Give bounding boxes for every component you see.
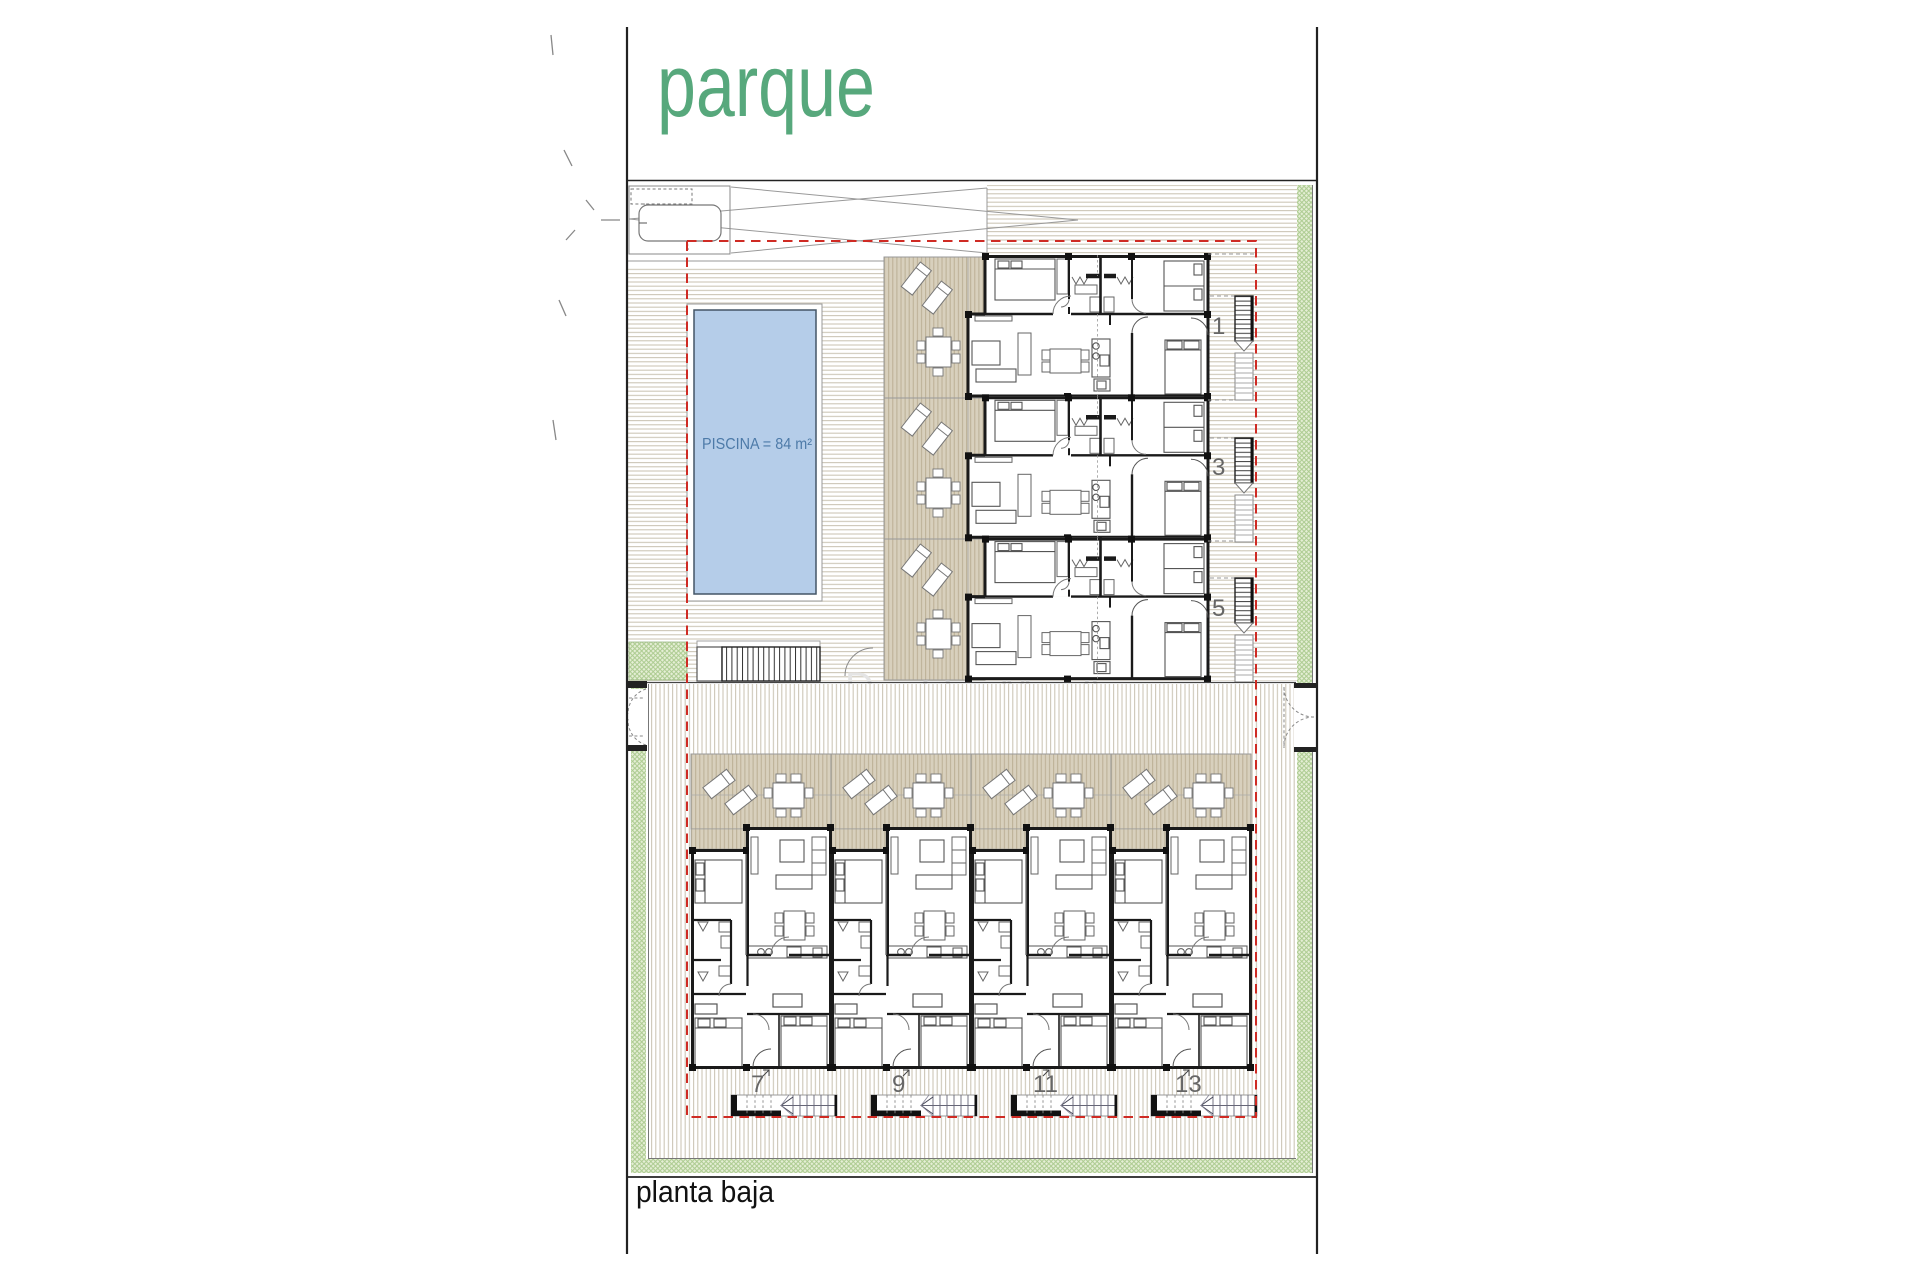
svg-text:11: 11	[1033, 1071, 1058, 1098]
svg-text:3: 3	[1212, 454, 1225, 481]
svg-text:7: 7	[751, 1071, 764, 1098]
svg-text:5: 5	[1212, 595, 1225, 622]
svg-text:9: 9	[892, 1071, 905, 1098]
svg-text:parque: parque	[657, 36, 875, 135]
svg-text:13: 13	[1175, 1071, 1202, 1098]
svg-text:1: 1	[1212, 313, 1225, 340]
svg-text:planta baja: planta baja	[636, 1174, 775, 1209]
svg-text:PISCINA = 84 m²: PISCINA = 84 m²	[702, 436, 812, 453]
